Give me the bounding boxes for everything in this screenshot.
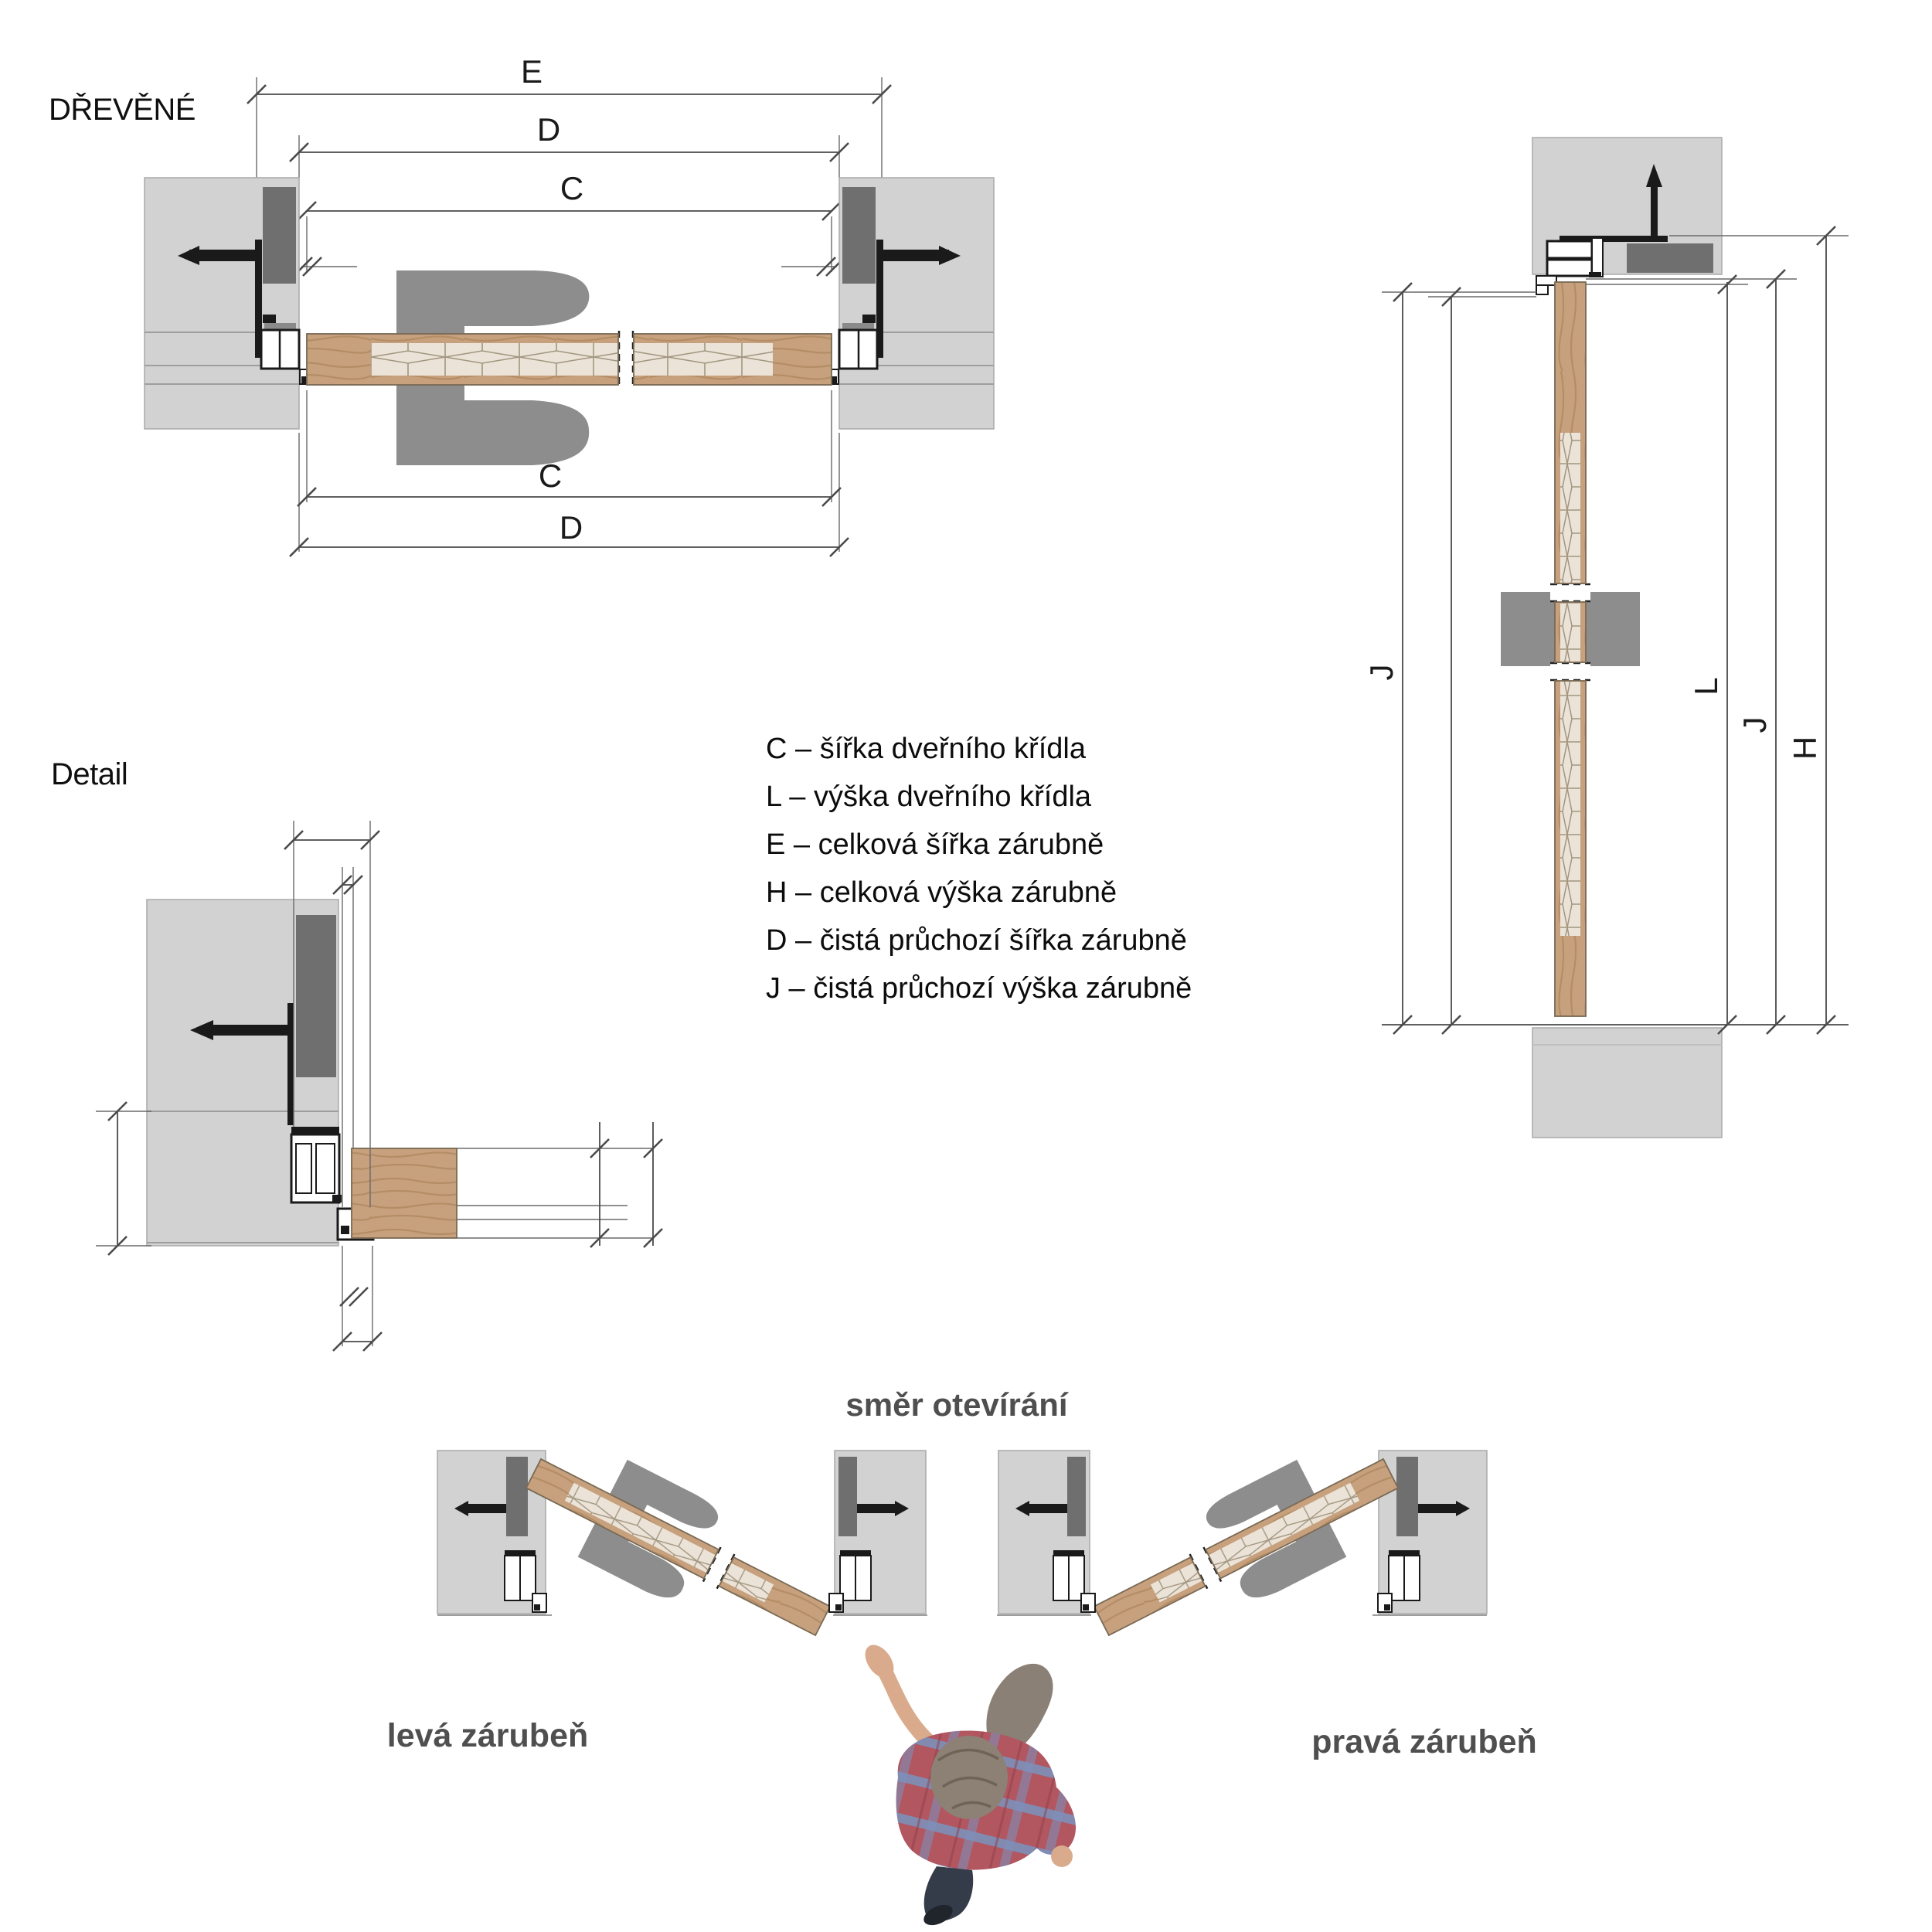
legend-item-d: D – čistá průchozí šířka zárubně <box>766 917 1192 964</box>
right-frame-label: pravá zárubeň <box>1270 1723 1579 1761</box>
page-title: DŘEVĚNÉ <box>49 93 196 128</box>
legend-item-e: E – celková šířka zárubně <box>766 821 1192 869</box>
person-right-hand <box>1051 1845 1073 1867</box>
right-wall <box>839 178 994 429</box>
person-top-view <box>859 1640 1076 1930</box>
dim-label-h-right: H <box>1787 736 1823 760</box>
right-frame-swing-diagram <box>997 1424 1487 1668</box>
dim-label-j-right: J <box>1736 717 1773 733</box>
detail-diagram <box>96 821 662 1351</box>
dimension-lines-top: E D C <box>247 53 891 276</box>
legend-item-c: C – šířka dveřního křídla <box>766 725 1192 773</box>
dim-label-d-bottom: D <box>560 509 583 546</box>
door-leaf-horizontal-section <box>307 331 832 388</box>
dim-label-c-top: C <box>560 170 583 206</box>
detail-door-leaf <box>352 1148 653 1238</box>
vertical-section-diagram: J L J H <box>1363 138 1849 1138</box>
dim-label-l-right: L <box>1688 677 1724 695</box>
legend: C – šířka dveřního křídla L – výška dveř… <box>766 725 1192 1012</box>
drawing-sheet: E D C <box>0 0 1932 1932</box>
legend-item-l: L – výška dveřního křídla <box>766 773 1192 821</box>
left-wall <box>145 178 299 429</box>
dim-label-j-left: J <box>1363 665 1400 681</box>
direction-label: směr otevírání <box>802 1386 1111 1423</box>
dim-label-e-top: E <box>521 53 543 90</box>
legend-item-j: J – čistá průchozí výška zárubně <box>766 964 1192 1012</box>
horizontal-section-diagram: E D C <box>145 53 994 556</box>
dim-label-d-top: D <box>537 111 560 148</box>
left-frame-label: levá zárubeň <box>333 1717 642 1755</box>
left-frame-swing-diagram <box>437 1424 927 1668</box>
legend-item-h: H – celková výška zárubně <box>766 869 1192 917</box>
detail-title: Detail <box>51 757 128 792</box>
door-leaf-vertical-section <box>1550 282 1590 1016</box>
floor-block <box>1532 1028 1722 1138</box>
dim-label-c-bottom: C <box>539 457 562 494</box>
